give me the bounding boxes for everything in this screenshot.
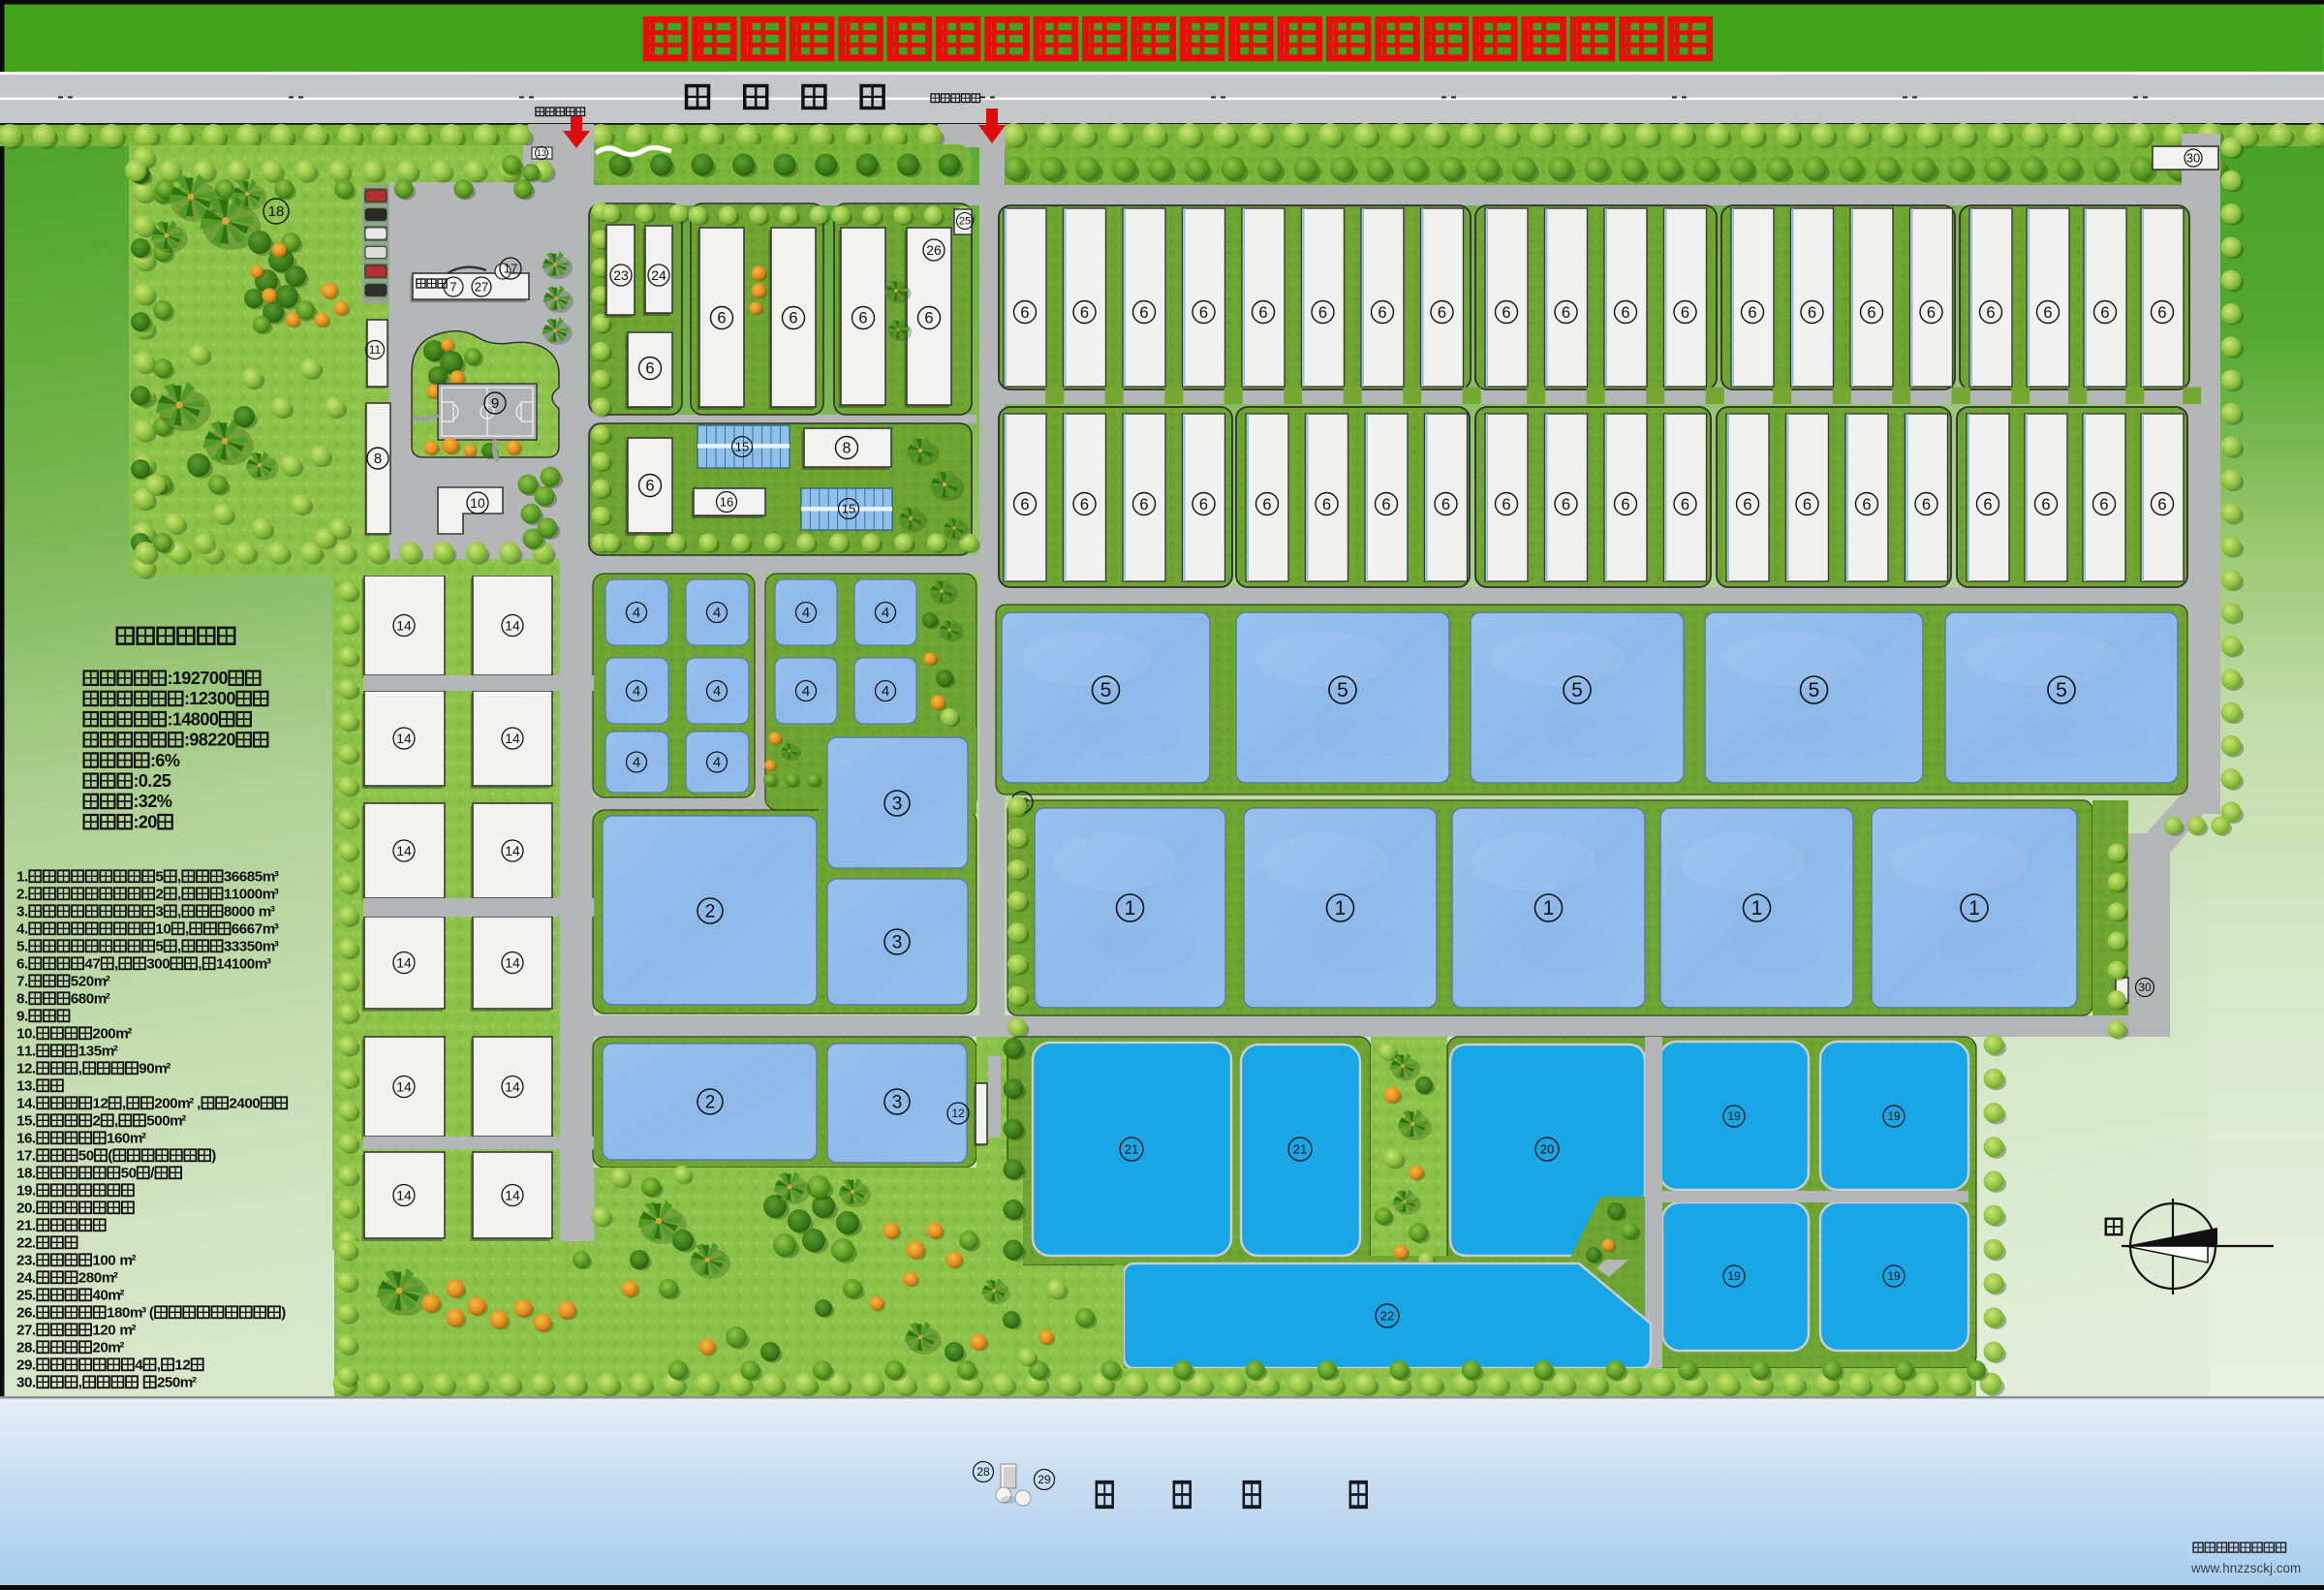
- svg-text:²: ²: [113, 1044, 118, 1060]
- svg-text:6: 6: [1080, 304, 1089, 322]
- svg-text:5: 5: [2056, 679, 2067, 701]
- svg-text:,: ,: [198, 956, 201, 973]
- svg-text:,: ,: [114, 1113, 118, 1130]
- svg-text:7: 7: [449, 279, 456, 294]
- svg-text:19: 19: [1727, 1109, 1741, 1123]
- svg-text:,: ,: [157, 1357, 161, 1374]
- svg-text:,: ,: [78, 1061, 82, 1077]
- svg-text:,: ,: [78, 1375, 82, 1391]
- svg-text:.: .: [32, 1166, 36, 1182]
- svg-text:²: ²: [106, 974, 110, 990]
- svg-text:²: ²: [192, 1375, 197, 1391]
- svg-text:5: 5: [162, 771, 171, 791]
- svg-text:20: 20: [1540, 1141, 1554, 1156]
- svg-text:2: 2: [155, 887, 163, 903]
- svg-text:10: 10: [470, 495, 485, 511]
- svg-text:6: 6: [2041, 496, 2050, 514]
- svg-text:28: 28: [976, 1465, 990, 1479]
- svg-text:³: ³: [270, 904, 275, 920]
- svg-text:.: .: [32, 1323, 36, 1339]
- svg-text:6: 6: [1258, 304, 1267, 322]
- svg-text:6: 6: [1803, 496, 1812, 514]
- svg-text:2: 2: [705, 1093, 716, 1113]
- svg-text:6: 6: [789, 310, 797, 327]
- svg-text:14: 14: [396, 731, 412, 746]
- svg-text:²: ²: [132, 1323, 137, 1339]
- svg-text:6: 6: [2099, 496, 2108, 514]
- svg-text:2: 2: [100, 1096, 108, 1112]
- svg-text:.: .: [32, 1044, 36, 1060]
- svg-text:9: 9: [491, 395, 499, 412]
- svg-text:15: 15: [735, 439, 749, 453]
- svg-text:6: 6: [1862, 496, 1871, 514]
- svg-text:²: ²: [132, 1253, 137, 1269]
- svg-text:6: 6: [1808, 304, 1816, 322]
- svg-text:²: ²: [189, 1096, 194, 1112]
- svg-text:6: 6: [1381, 496, 1390, 514]
- svg-text:.: .: [32, 1096, 36, 1112]
- svg-text:5: 5: [155, 869, 164, 886]
- svg-text:4: 4: [882, 683, 889, 700]
- svg-text:0: 0: [162, 956, 170, 973]
- svg-text:6: 6: [858, 310, 867, 327]
- svg-text:3: 3: [892, 933, 903, 953]
- svg-text:19: 19: [1727, 1269, 1741, 1283]
- svg-text:13: 13: [537, 148, 546, 158]
- svg-text:18: 18: [268, 203, 285, 220]
- svg-text:²: ²: [127, 1026, 132, 1043]
- svg-text:6: 6: [1621, 496, 1629, 514]
- svg-text:4: 4: [802, 683, 810, 700]
- svg-text:29: 29: [1038, 1473, 1051, 1486]
- svg-text:³: ³: [274, 939, 279, 955]
- svg-text:.: .: [24, 939, 28, 955]
- svg-text:.: .: [32, 1183, 36, 1200]
- svg-text:,: ,: [185, 921, 189, 938]
- svg-text:.: .: [24, 1009, 28, 1025]
- svg-text:14: 14: [505, 843, 520, 858]
- svg-text:,: ,: [197, 1096, 201, 1112]
- svg-text:%: %: [165, 751, 180, 770]
- svg-text:.: .: [32, 1340, 36, 1356]
- svg-text:6: 6: [1020, 304, 1029, 322]
- svg-text:.: .: [32, 1078, 36, 1095]
- svg-text:0: 0: [108, 1323, 115, 1339]
- svg-text:6: 6: [1743, 496, 1751, 514]
- svg-text:6: 6: [1378, 304, 1386, 322]
- svg-text:0: 0: [218, 669, 228, 688]
- svg-text:16: 16: [720, 494, 733, 509]
- svg-text:.: .: [32, 1270, 36, 1287]
- svg-text:6: 6: [1199, 496, 1208, 514]
- svg-text:14: 14: [505, 1078, 520, 1094]
- svg-text:): ): [211, 1148, 216, 1165]
- svg-text:.: .: [24, 956, 28, 973]
- svg-text:6: 6: [155, 751, 165, 770]
- svg-text:19: 19: [1887, 1109, 1901, 1123]
- svg-text:6: 6: [1562, 496, 1570, 514]
- svg-text:0: 0: [209, 709, 219, 729]
- svg-text:,: ,: [114, 956, 118, 973]
- svg-text:3: 3: [155, 904, 163, 920]
- svg-text:www.hnzzsckj.com: www.hnzzsckj.com: [2190, 1561, 2301, 1575]
- svg-text:): ): [281, 1305, 286, 1322]
- svg-text:.: .: [32, 1253, 36, 1269]
- svg-text:23: 23: [613, 267, 629, 283]
- svg-text:.: .: [32, 1375, 36, 1391]
- svg-text:6: 6: [1199, 304, 1208, 322]
- svg-text:21: 21: [1125, 1141, 1138, 1156]
- svg-text:5: 5: [1571, 679, 1583, 701]
- svg-text:.: .: [32, 1288, 36, 1304]
- svg-text:14: 14: [505, 731, 520, 746]
- svg-text:.: .: [32, 1235, 36, 1252]
- svg-text:4: 4: [713, 605, 721, 621]
- svg-text:15: 15: [842, 501, 855, 515]
- svg-text:0: 0: [226, 731, 235, 750]
- svg-text:6: 6: [1502, 304, 1510, 322]
- svg-text:6: 6: [645, 360, 654, 378]
- svg-text:.: .: [32, 1305, 36, 1322]
- svg-text:²: ²: [166, 1061, 170, 1077]
- svg-text:²: ²: [119, 1288, 124, 1304]
- svg-text:6: 6: [924, 310, 933, 327]
- svg-text:8: 8: [843, 440, 852, 456]
- svg-text:.: .: [24, 921, 28, 938]
- svg-text:.: .: [32, 1026, 36, 1043]
- svg-text:6: 6: [1562, 304, 1570, 322]
- svg-text:³: ³: [141, 1305, 146, 1322]
- svg-text:26: 26: [926, 242, 942, 258]
- svg-text:³: ³: [266, 956, 271, 973]
- svg-text:4: 4: [882, 605, 889, 621]
- svg-text:14: 14: [396, 1078, 412, 1094]
- svg-text:17: 17: [504, 261, 517, 275]
- svg-text:.: .: [32, 1148, 36, 1165]
- svg-text:³: ³: [274, 869, 279, 886]
- svg-text:1: 1: [1125, 897, 1136, 920]
- svg-text:0: 0: [252, 1096, 260, 1112]
- svg-text:14: 14: [396, 1187, 412, 1202]
- svg-text:4: 4: [633, 605, 640, 621]
- svg-text:%: %: [157, 792, 172, 811]
- svg-text:1: 1: [1543, 897, 1555, 920]
- svg-text:6: 6: [1080, 496, 1089, 514]
- svg-text:5: 5: [1809, 679, 1820, 701]
- svg-text:1: 1: [1335, 897, 1347, 920]
- svg-text:,: ,: [177, 887, 181, 903]
- svg-text:22: 22: [1380, 1308, 1394, 1323]
- svg-text:6: 6: [1681, 304, 1689, 322]
- svg-text:6: 6: [717, 310, 726, 327]
- svg-text:21: 21: [1293, 1141, 1307, 1156]
- svg-text:6: 6: [1322, 496, 1331, 514]
- svg-text:.: .: [24, 904, 28, 920]
- svg-text:6: 6: [2100, 304, 2109, 322]
- svg-text:9: 9: [189, 731, 199, 750]
- svg-text:3: 3: [892, 795, 903, 815]
- svg-text:6: 6: [1986, 304, 1995, 322]
- svg-text:6: 6: [1441, 496, 1450, 514]
- svg-text:0: 0: [226, 689, 235, 708]
- svg-text:6: 6: [1262, 496, 1271, 514]
- svg-text:0: 0: [163, 921, 170, 938]
- svg-text:4: 4: [802, 605, 810, 621]
- svg-text:6: 6: [2157, 496, 2166, 514]
- svg-text:6: 6: [1438, 304, 1446, 322]
- svg-text:0: 0: [108, 1253, 115, 1269]
- svg-text:.: .: [24, 974, 28, 990]
- svg-text:6: 6: [1318, 304, 1327, 322]
- svg-text:6: 6: [1681, 496, 1689, 514]
- svg-text:14: 14: [396, 954, 412, 970]
- svg-text:14: 14: [505, 1187, 520, 1202]
- svg-text:6: 6: [1139, 496, 1148, 514]
- svg-text:12: 12: [951, 1107, 965, 1120]
- svg-text:1: 1: [1968, 897, 1980, 920]
- svg-text:6: 6: [1983, 496, 1992, 514]
- svg-text:25: 25: [959, 216, 971, 228]
- svg-text:27: 27: [475, 279, 488, 294]
- svg-text:.: .: [32, 1357, 36, 1374]
- svg-text:6: 6: [2043, 304, 2052, 322]
- svg-text:2: 2: [705, 902, 716, 922]
- svg-text:14: 14: [396, 843, 412, 858]
- svg-text:³: ³: [274, 921, 279, 938]
- svg-text:,: ,: [177, 939, 181, 955]
- svg-text:4: 4: [713, 683, 721, 700]
- svg-text:3: 3: [892, 1093, 903, 1113]
- svg-text:5: 5: [155, 939, 164, 955]
- svg-text:0: 0: [129, 1166, 137, 1182]
- svg-text:30: 30: [2186, 150, 2200, 165]
- svg-text:²: ²: [141, 1131, 146, 1147]
- svg-text:6: 6: [1927, 304, 1936, 322]
- svg-text:2: 2: [182, 1357, 190, 1374]
- svg-text:6: 6: [2157, 304, 2166, 322]
- svg-text:.: .: [32, 1113, 36, 1130]
- svg-text:.: .: [24, 869, 28, 886]
- svg-text:4: 4: [135, 1357, 143, 1374]
- svg-text:.: .: [32, 1200, 36, 1217]
- svg-text:²: ²: [113, 1270, 118, 1287]
- svg-text:14: 14: [396, 617, 412, 633]
- svg-text:4: 4: [713, 755, 721, 771]
- svg-text:14: 14: [505, 954, 520, 970]
- svg-text:.: .: [24, 887, 28, 903]
- svg-text:³: ³: [274, 887, 279, 903]
- svg-text:²: ²: [119, 1340, 124, 1356]
- svg-text:1: 1: [189, 689, 199, 708]
- svg-text:6: 6: [1502, 496, 1510, 514]
- svg-text:6: 6: [1139, 304, 1148, 322]
- svg-text:1: 1: [1751, 897, 1763, 920]
- svg-text:²: ²: [181, 1113, 186, 1130]
- svg-text:2: 2: [92, 1113, 100, 1130]
- svg-text:5: 5: [1337, 679, 1348, 701]
- svg-text:6: 6: [645, 478, 654, 495]
- svg-text:6: 6: [1621, 304, 1629, 322]
- svg-text:,: ,: [177, 869, 181, 886]
- svg-text:.: .: [32, 1061, 36, 1077]
- svg-text:0: 0: [247, 904, 255, 920]
- svg-text:²: ²: [106, 991, 110, 1008]
- svg-text:8: 8: [374, 451, 382, 467]
- svg-text:24: 24: [651, 267, 666, 283]
- svg-text:19: 19: [1887, 1269, 1901, 1283]
- svg-text:30: 30: [2138, 981, 2152, 994]
- svg-text:6: 6: [1867, 304, 1875, 322]
- svg-text:6: 6: [1020, 496, 1029, 514]
- svg-text:.: .: [32, 1218, 36, 1234]
- svg-text:6: 6: [1748, 304, 1756, 322]
- svg-text:0: 0: [86, 1148, 94, 1165]
- svg-text:4: 4: [633, 755, 640, 771]
- svg-text:0: 0: [147, 812, 157, 831]
- svg-text:7: 7: [92, 956, 100, 973]
- svg-text:14: 14: [505, 617, 520, 633]
- svg-text:11: 11: [369, 343, 382, 357]
- svg-text:5: 5: [1100, 679, 1112, 701]
- svg-text:.: .: [32, 1131, 36, 1147]
- svg-text:,: ,: [122, 1096, 126, 1112]
- svg-text:6: 6: [1922, 496, 1931, 514]
- svg-text:,: ,: [177, 904, 181, 920]
- svg-text:.: .: [24, 991, 28, 1008]
- svg-text:4: 4: [633, 683, 640, 700]
